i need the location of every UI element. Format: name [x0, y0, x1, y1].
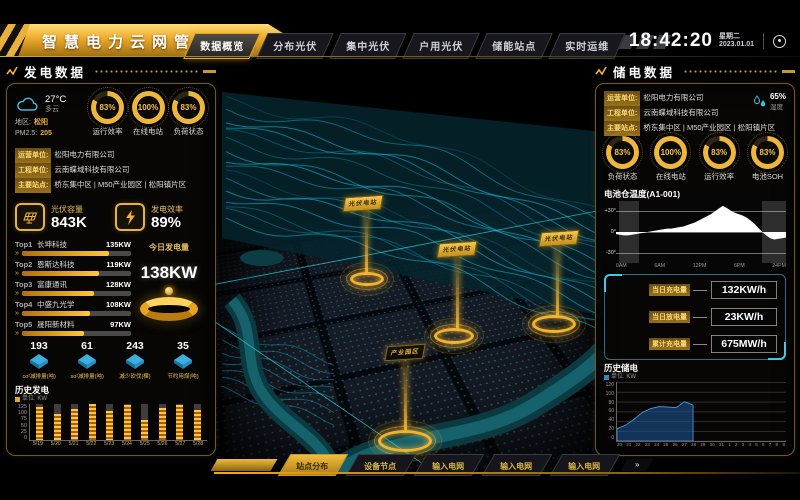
chart-el: 120 — [604, 382, 614, 388]
bar-cell — [31, 404, 49, 440]
chart-el: 0AM — [616, 263, 627, 271]
bar-cell — [154, 404, 172, 440]
nav-tab-residential-pv[interactable]: 户用光伏 — [402, 33, 480, 59]
zigzag-icon — [6, 65, 19, 77]
chart-el: 21 — [626, 442, 631, 449]
lightning-icon — [115, 203, 145, 231]
gauge-online: 100% — [132, 91, 165, 124]
dashboard-root: 光伏电站 光伏电站 光伏电站 产业园区 智慧电力云网管理系统 数据概览 分布光伏… — [0, 0, 800, 500]
chart-el: 80 — [604, 400, 614, 406]
chart-el: 5/23 — [100, 441, 118, 449]
generation-panel-title: 发电数据 — [6, 62, 216, 80]
main-nav: 数据概览 分布光伏 集中光伏 户用光伏 储能站点 实时运维 — [189, 33, 620, 59]
glow-orb-icon — [165, 287, 173, 295]
bar-track — [159, 404, 166, 440]
kpi-value: 132KW/h — [711, 281, 777, 299]
kpi-value: 675MW/h — [711, 335, 777, 353]
chart-el: 5/26 — [154, 441, 172, 449]
chart-el: 50 — [15, 423, 27, 429]
bar-track — [176, 404, 183, 440]
storage-panel-body: 运营单位:松阳电力有限公司 工程单位:云南蝶域科技有限公司 主要站点:桥东集中区… — [595, 83, 795, 456]
bar-track — [124, 404, 131, 440]
nav-tab-realtime-ops[interactable]: 实时运维 — [548, 33, 626, 59]
pyramid-icon — [75, 353, 99, 370]
bar-cell — [49, 404, 67, 440]
chart-el: 5/24 — [118, 441, 136, 449]
pv-capacity-stat: 光伏容量843K — [15, 197, 107, 237]
today-generation: 今日发电量 138KW — [131, 240, 207, 337]
chart-el: 28 — [691, 442, 696, 449]
chart-el: 12PM — [693, 263, 707, 271]
chart-el: 5/27 — [171, 441, 189, 449]
gauge-efficiency: 83% — [703, 136, 736, 169]
chart-el: 6PM — [734, 263, 745, 271]
chart-el: 30 — [710, 442, 715, 449]
chart-el: 5/20 — [47, 441, 65, 449]
battery-temp-chart: 电池仓温度(A1-001) +30° 0° -30° 0AM6AM12PM6PM… — [604, 189, 786, 271]
chart-el: 20 — [604, 426, 614, 432]
chart-el: 8 — [776, 442, 779, 449]
bar-fill — [71, 409, 78, 440]
bar-cell — [136, 404, 154, 440]
bar-fill — [141, 420, 148, 440]
humidity-block: 65%湿度 — [753, 92, 786, 111]
kpi-discharge-today: 当日放电量 23KW/h — [613, 308, 777, 326]
legend-swatch-gold — [15, 397, 20, 402]
chart-el: 9 — [782, 442, 785, 449]
weather-block: 27°C 多云 地区:松阳 PM2.5:205 — [15, 91, 89, 145]
chevrons-end-icon: » — [621, 459, 654, 471]
chevron-right-icon: » — [15, 310, 19, 317]
bar-fill — [124, 405, 131, 440]
gold-torus-icon — [140, 297, 198, 321]
y-axis-labels: 1251007550250 — [15, 404, 29, 449]
storage-kpi-group: 当日充电量 132KW/h 当日放电量 23KW/h 累计充电量 675MW/h — [604, 274, 786, 360]
chevron-right-icon: » — [15, 330, 19, 337]
bar-cell — [66, 404, 84, 440]
gauge-online: 100% — [654, 136, 687, 169]
bar-fill — [176, 405, 183, 440]
bar-cell — [171, 404, 189, 440]
cloud-icon — [15, 95, 41, 113]
chart-el: 125 — [15, 404, 27, 410]
capacity-stats: 光伏容量843K 发电效率89% — [15, 197, 207, 237]
region-value: 松阳 — [34, 117, 48, 128]
generation-panel: 发电数据 27°C 多云 地区:松阳 PM2. — [6, 62, 216, 456]
bar-track — [36, 404, 43, 440]
water-drops-icon — [753, 95, 767, 109]
y-axis-labels: 120100806040200 — [604, 382, 616, 449]
eco-stat-coal: 35 节约用煤(吨) — [159, 340, 207, 382]
chart-el: 4 — [748, 442, 751, 449]
clock-time: 18:42:20 — [629, 30, 713, 52]
kpi-charge-today: 当日充电量 132KW/h — [613, 281, 777, 299]
bar-track — [106, 404, 113, 440]
chevron-right-icon: » — [15, 290, 19, 297]
list-item: Top3富康通讯128KW » — [15, 280, 131, 297]
bar-fill — [89, 404, 96, 440]
gen-efficiency-stat: 发电效率89% — [115, 197, 207, 237]
gauge-battery-soh: 83% — [751, 136, 784, 169]
chart-el: 6 — [762, 442, 765, 449]
chart-el: 5 — [755, 442, 758, 449]
area-plot — [616, 382, 786, 442]
bar-cell — [84, 404, 102, 440]
bar-track — [89, 404, 96, 440]
x-axis-labels: 5/195/205/215/225/235/245/255/265/275/28 — [29, 441, 207, 449]
chart-el: 5/25 — [136, 441, 154, 449]
marker-plaque: 产业园区 — [384, 344, 425, 362]
chart-el: 5/28 — [189, 441, 207, 449]
chart-el: 100 — [604, 391, 614, 397]
pyramid-icon — [123, 353, 147, 370]
chart-el: 100 — [15, 410, 27, 416]
chart-el: 25 — [15, 429, 27, 435]
nav-tab-centralized-pv[interactable]: 集中光伏 — [329, 33, 407, 59]
nav-tab-storage-sites[interactable]: 储能站点 — [475, 33, 553, 59]
bar-track — [71, 404, 78, 440]
chart-el: 1 — [728, 442, 731, 449]
bar-track — [141, 404, 148, 440]
bar-track — [54, 404, 61, 440]
list-item: Top2恩斯达科技119KW » — [15, 260, 131, 277]
eco-stats: 193 co²减排量(吨) 61 so²减排量(吨) 243 减少砍伐(棵) 3… — [15, 340, 207, 382]
generation-panel-body: 27°C 多云 地区:松阳 PM2.5:205 83%运行效率 100%在线电站… — [6, 83, 216, 456]
eco-stat-trees: 243 减少砍伐(棵) — [111, 340, 159, 382]
generation-gauges: 83%运行效率 100%在线电站 83%负荷状态 — [89, 91, 207, 145]
x-axis-labels: 202122232425262728293031123456789 — [616, 442, 786, 449]
chart-el: 22 — [636, 442, 641, 449]
bar-fill — [54, 414, 61, 440]
chart-el: 3 — [742, 442, 745, 449]
list-item: Top4中盛九光学108KW » — [15, 300, 131, 317]
x-axis-labels: 0AM6AM12PM6PM24PM — [604, 263, 786, 271]
history-generation-chart: 历史发电 单位: KW 1251007550250 5/195/205/215/… — [15, 385, 207, 449]
zigzag-icon — [595, 65, 608, 77]
bar-fill — [36, 407, 43, 440]
gold-lead-shape — [211, 459, 278, 471]
gauge-load: 83% — [606, 136, 639, 169]
chart-el: 5/21 — [65, 441, 83, 449]
marker-ring-icon — [434, 328, 474, 344]
marker-ring-icon — [532, 315, 576, 333]
marker-plaque: 光伏电站 — [538, 230, 579, 248]
chart-el: 23 — [645, 442, 650, 449]
bar-cell — [101, 404, 119, 440]
temp-plot: +30° 0° -30° — [604, 201, 786, 263]
chart-el: 20 — [617, 442, 622, 449]
marker-ring-icon — [350, 272, 384, 286]
bar-cell — [119, 404, 137, 440]
storage-gauges: 83%负荷状态 100%在线电站 83%运行效率 83%电池SOH — [604, 136, 786, 186]
today-generation-value: 138KW — [141, 263, 198, 283]
map-3d-scene — [213, 56, 603, 474]
bar-fill — [106, 411, 113, 440]
chart-el: 2 — [735, 442, 738, 449]
chart-el: 27 — [682, 442, 687, 449]
bottom-accent-line — [214, 472, 800, 474]
chart-el: 7 — [769, 442, 772, 449]
operator-info: 运营单位:松阳电力有限公司 工程单位:云南蝶域科技有限公司 主要站点:桥东集中区… — [604, 91, 786, 133]
bar-fill — [194, 410, 201, 440]
marker-ring-icon — [378, 430, 432, 452]
clock: 18:42:20 星期二2023.01.01 — [629, 30, 786, 52]
chart-el: 26 — [673, 442, 678, 449]
marker-plaque: 光伏电站 — [436, 241, 477, 259]
chevron-right-icon: » — [15, 270, 19, 277]
dash — [203, 70, 216, 73]
bar-plot — [29, 404, 207, 441]
chart-el: 31 — [719, 442, 724, 449]
nav-tab-data-overview[interactable]: 数据概览 — [183, 33, 261, 59]
chart-el: 0 — [15, 435, 27, 441]
kpi-value: 23KW/h — [711, 308, 777, 326]
list-item: Top5晟阳新材料97KW » — [15, 320, 131, 337]
storage-panel: 储电数据 运营单位:松阳电力有限公司 工程单位:云南蝶域科技有限公司 主要站点:… — [595, 62, 795, 456]
gauge-load: 83% — [172, 91, 205, 124]
pyramid-icon — [171, 353, 195, 370]
chart-el: 6AM — [654, 263, 665, 271]
chart-el: 29 — [700, 442, 705, 449]
kpi-total-charge: 累计充电量 675MW/h — [613, 335, 777, 353]
legend-swatch-blue — [604, 375, 609, 380]
clock-date: 星期二2023.01.01 — [719, 33, 754, 49]
temperature: 27°C — [45, 95, 66, 104]
chart-el: 25 — [663, 442, 668, 449]
storage-panel-title: 储电数据 — [595, 62, 795, 80]
bar-fill — [159, 408, 166, 440]
pm25-value: 205 — [40, 128, 52, 139]
gauge-efficiency: 83% — [91, 91, 124, 124]
chart-el: 24PM — [772, 263, 786, 271]
nav-tab-distributed-pv[interactable]: 分布光伏 — [256, 33, 334, 59]
record-icon[interactable] — [773, 35, 786, 48]
eco-stat-co2: 193 co²减排量(吨) — [15, 340, 63, 382]
eco-stat-so2: 61 so²减排量(吨) — [63, 340, 111, 382]
divider — [763, 33, 764, 49]
chart-el: 40 — [604, 417, 614, 423]
dotted-line — [94, 70, 198, 73]
chart-el: 5/22 — [82, 441, 100, 449]
marker-plaque: 光伏电站 — [342, 195, 383, 213]
header: 智慧电力云网管理系统 数据概览 分布光伏 集中光伏 户用光伏 储能站点 实时运维… — [0, 0, 800, 57]
bar-track — [194, 404, 201, 440]
bar-cell — [189, 404, 207, 440]
solar-panel-icon — [15, 203, 45, 231]
history-storage-chart: 历史储电 单位: KW 120100806040200 202122232425… — [604, 363, 786, 449]
chevron-right-icon: » — [15, 250, 19, 257]
map-bottom-tabs: 站点分布 设备节点 输入电网 输入电网 输入电网 » — [214, 457, 800, 473]
chart-el: 5/19 — [29, 441, 47, 449]
pyramid-icon — [27, 353, 51, 370]
chart-el: 0 — [604, 435, 614, 441]
top5-generation-list: Top1长坤科技135KW » Top2恩斯达科技119KW » Top3富康通… — [15, 240, 131, 337]
chart-el: 75 — [15, 416, 27, 422]
hazard-stripes-icon — [0, 24, 30, 57]
list-item: Top1长坤科技135KW » — [15, 240, 131, 257]
operator-info: 运营单位:松阳电力有限公司 工程单位:云南蝶域科技有限公司 主要站点:桥东集中区… — [15, 148, 207, 193]
dash — [782, 70, 795, 73]
weather-condition: 多云 — [45, 104, 66, 114]
chart-el: 24 — [654, 442, 659, 449]
dotted-line — [683, 70, 777, 73]
chart-el: 60 — [604, 408, 614, 414]
